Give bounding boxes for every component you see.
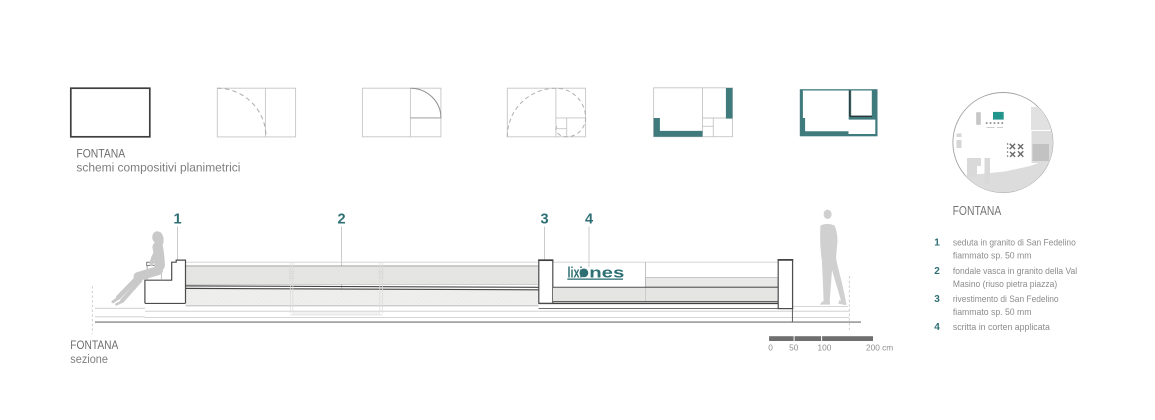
svg-text:rivestimento di San Fedelino: rivestimento di San Fedelino xyxy=(953,294,1059,304)
svg-text:fondale vasca in granito della: fondale vasca in granito della Val xyxy=(953,266,1077,276)
svg-text:0: 0 xyxy=(768,343,773,353)
svg-text:2: 2 xyxy=(934,266,940,277)
svg-text:1: 1 xyxy=(934,238,940,249)
svg-text:1: 1 xyxy=(173,212,181,228)
svg-text:200 cm: 200 cm xyxy=(866,343,893,353)
svg-text:Masino (riuso pietra piazza): Masino (riuso pietra piazza) xyxy=(953,279,1057,289)
svg-text:100: 100 xyxy=(817,343,831,353)
svg-text:schemi compositivi planimetric: schemi compositivi planimetrici xyxy=(76,160,240,174)
svg-text:sezione: sezione xyxy=(70,352,108,366)
svg-text:3: 3 xyxy=(540,212,548,228)
svg-text:FONTANA: FONTANA xyxy=(76,147,125,161)
svg-text:3: 3 xyxy=(934,294,940,305)
svg-text:FONTANA: FONTANA xyxy=(953,203,1002,218)
svg-text:seduta in granito di San Fedel: seduta in granito di San Fedelino xyxy=(953,238,1076,248)
svg-text:scritta in corten applicata: scritta in corten applicata xyxy=(953,322,1051,332)
svg-text:fiammato sp. 50 mm: fiammato sp. 50 mm xyxy=(953,250,1032,260)
svg-text:50: 50 xyxy=(789,343,799,353)
svg-text:nes: nes xyxy=(589,264,624,281)
svg-text:fiammato sp. 50 mm: fiammato sp. 50 mm xyxy=(953,307,1032,317)
svg-text:2: 2 xyxy=(337,212,345,228)
svg-text:FONTANA: FONTANA xyxy=(70,338,119,352)
svg-text:4: 4 xyxy=(934,322,940,333)
svg-text:4: 4 xyxy=(585,212,593,228)
